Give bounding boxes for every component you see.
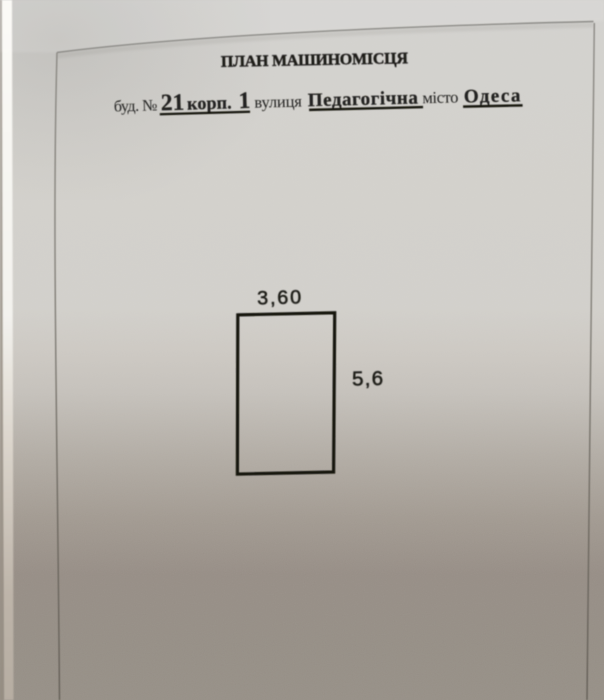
svg-text:корп.: корп. bbox=[187, 92, 232, 113]
svg-text:3,60: 3,60 bbox=[257, 287, 302, 310]
svg-text:5,6: 5,6 bbox=[352, 367, 383, 391]
svg-text:1: 1 bbox=[238, 88, 250, 114]
svg-text:буд. №: буд. № bbox=[114, 97, 158, 115]
svg-text:ПЛАН МАШИНОМІСЦЯ: ПЛАН МАШИНОМІСЦЯ bbox=[221, 50, 409, 71]
svg-text:Одеса: Одеса bbox=[464, 85, 521, 107]
svg-text:вулиця: вулиця bbox=[254, 92, 302, 112]
svg-text:місто: місто bbox=[422, 87, 458, 107]
svg-text:21: 21 bbox=[160, 90, 184, 117]
